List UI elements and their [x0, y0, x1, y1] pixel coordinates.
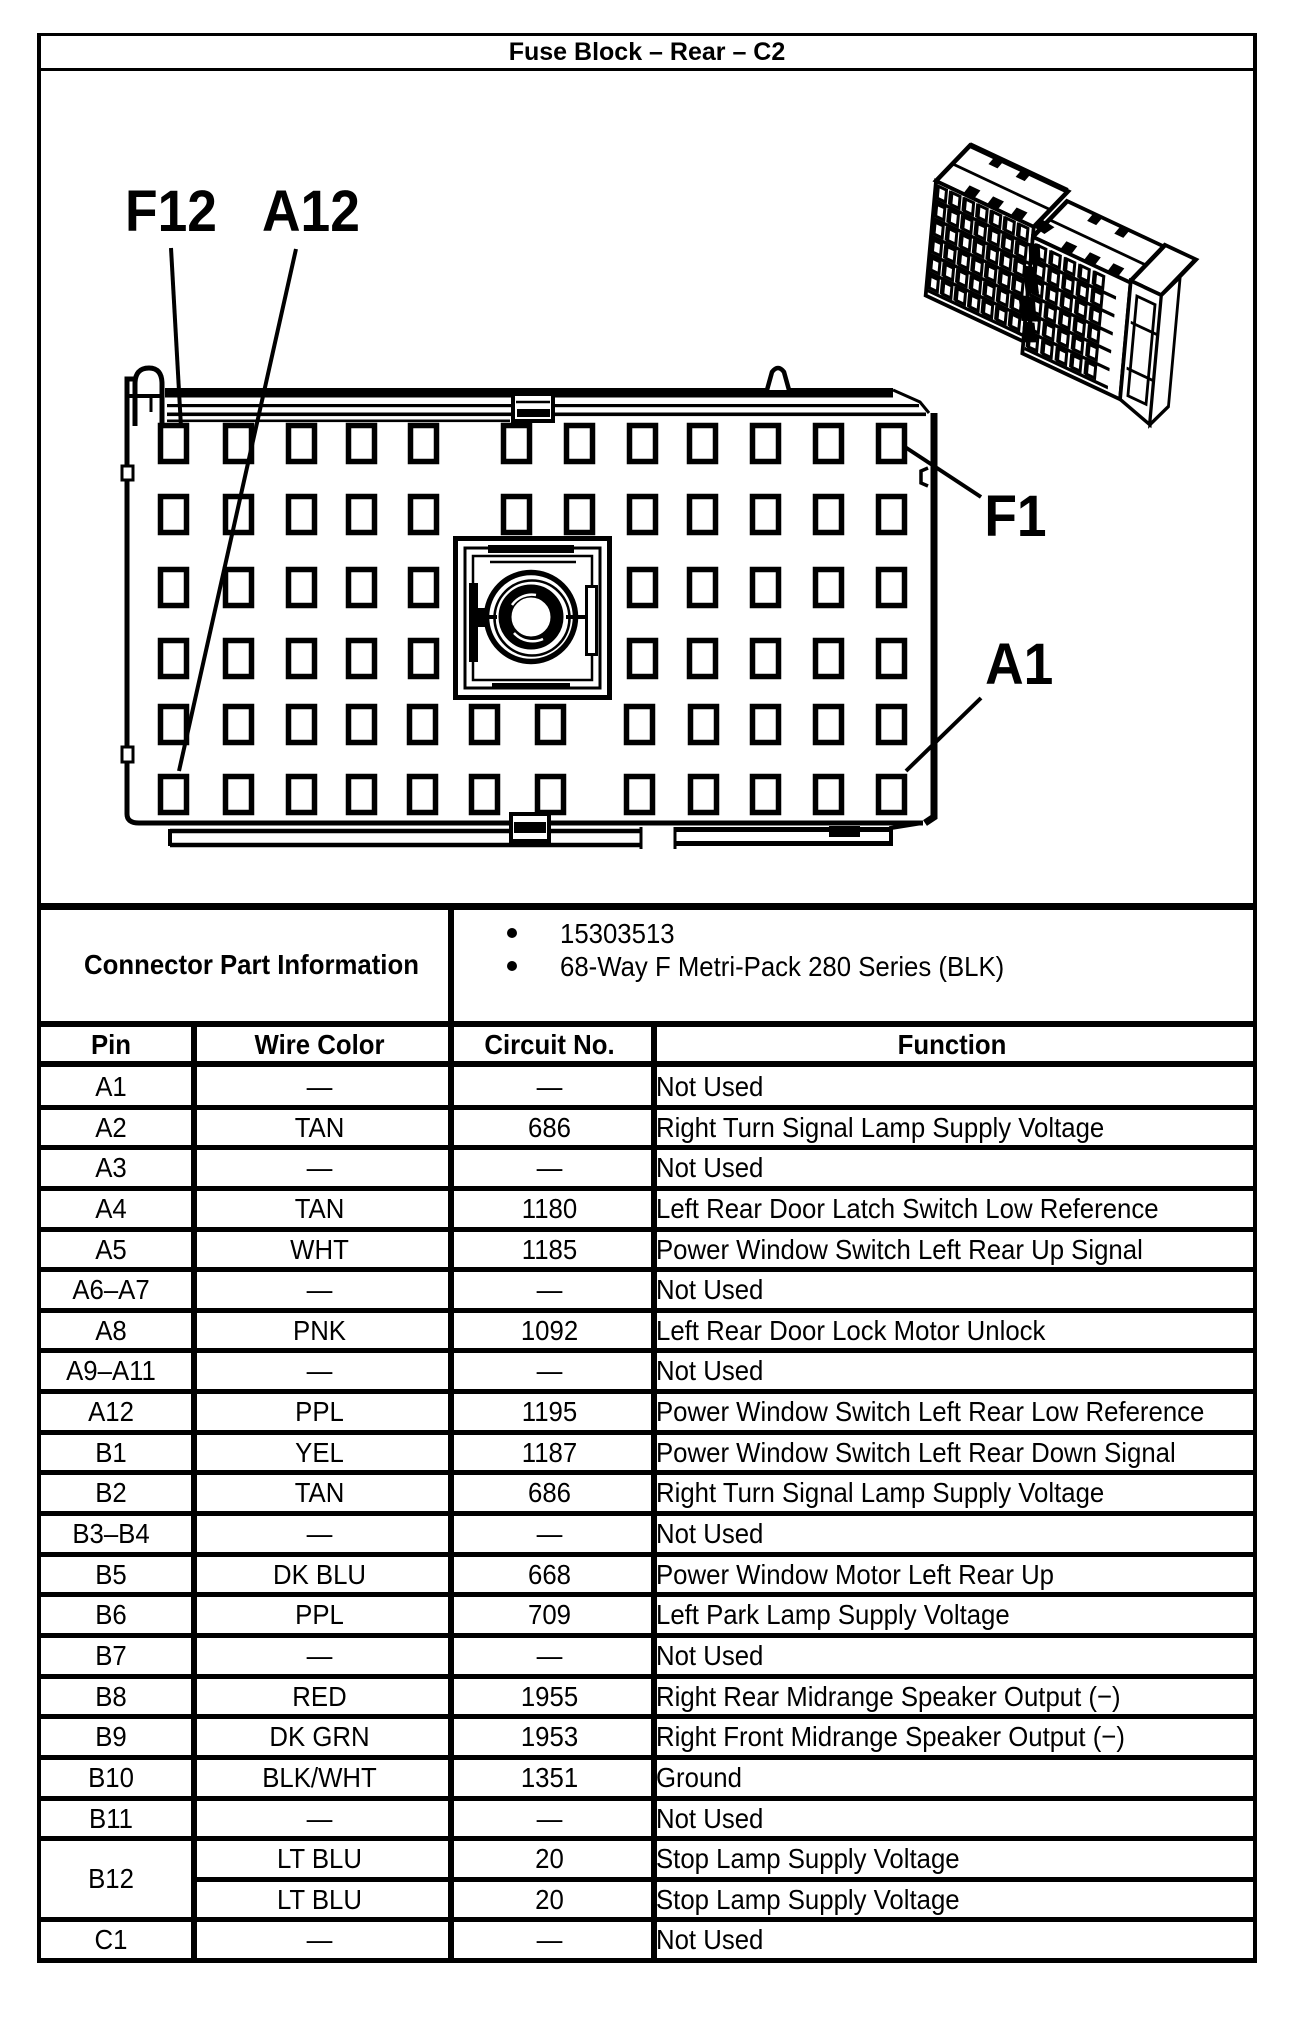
- svg-text:A1: A1: [985, 632, 1053, 697]
- svg-text:F1: F1: [984, 484, 1046, 549]
- svg-text:F12: F12: [125, 179, 217, 244]
- svg-text:A12: A12: [262, 179, 360, 244]
